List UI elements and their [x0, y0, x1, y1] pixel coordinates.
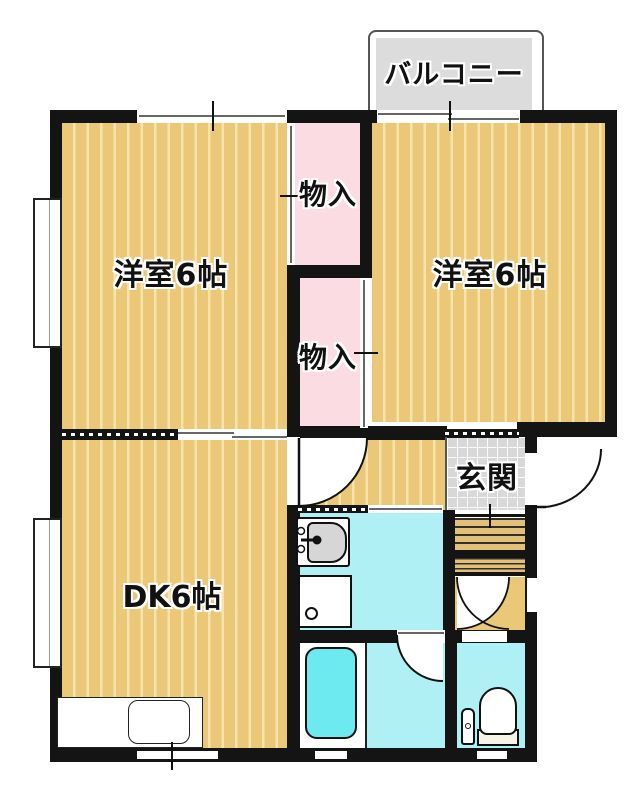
bath-divider-line [365, 643, 367, 748]
entrance-door-gap [525, 453, 537, 505]
toilet-panel-dot [465, 723, 471, 729]
closet-top-slider [287, 123, 295, 265]
wall-closets-bottom [287, 426, 447, 440]
toilet-door-gap [462, 631, 507, 642]
window-left-lower-line [49, 520, 50, 666]
wall-steps-top-line [447, 514, 525, 517]
washroom-sliding-opening [368, 505, 443, 513]
balcony-label: バルコニー [384, 53, 523, 92]
room-left-label: 洋室6帖 [114, 250, 229, 294]
closet-bottom-slider [360, 278, 368, 428]
window-left-lower [33, 518, 62, 668]
balcony-sliding-door [377, 110, 520, 123]
genkan-step-edge [445, 437, 447, 510]
window-left-upper-line [49, 200, 50, 346]
room-right-label: 洋室6帖 [433, 250, 548, 294]
washing-machine-pan [298, 575, 352, 628]
floorplan: バルコニー 洋室6帖 洋室6帖 物入 物入 玄関 DK6帖 [0, 0, 640, 796]
toilet-hall-floor [455, 577, 525, 630]
wall-top [50, 110, 617, 123]
window-bath [315, 751, 347, 759]
bath-door-gap [397, 630, 445, 643]
window-kitchen [137, 751, 218, 759]
wall-genkan-dashed [445, 429, 519, 438]
wall-steps-line [455, 572, 527, 576]
dk-hall-threshold [287, 437, 300, 505]
bathtub [305, 647, 357, 739]
wall-washroom-dashed [298, 505, 368, 513]
genkan-label: 玄関 [456, 453, 518, 497]
wall-room-right-bottom [517, 422, 617, 437]
door-arc-entrance [545, 449, 601, 507]
wall-steps-bar [447, 550, 537, 558]
entrance-steps-lower [455, 558, 527, 572]
closet-top-label: 物入 [299, 173, 357, 213]
hallway-floor [287, 437, 447, 510]
dk-label: DK6帖 [122, 572, 221, 616]
wall-dk-boundary-dashed [62, 429, 178, 440]
wall-right-upper [605, 110, 617, 437]
window-toilet [477, 751, 507, 759]
wall-bath-toilet [445, 630, 457, 748]
closet-bottom-label: 物入 [299, 336, 357, 376]
window-toilet-hall [527, 578, 537, 612]
window-left-upper [33, 198, 62, 348]
washbasin-bowl [307, 522, 347, 563]
wall-bath-row [287, 630, 397, 643]
window-top-left-room [137, 110, 287, 123]
entrance-steps-upper [455, 518, 527, 550]
toilet-bowl [479, 687, 517, 735]
wall-steps-left [443, 510, 455, 635]
dk-sliding-opening [178, 429, 287, 440]
bath-washplace-floor [365, 643, 445, 748]
wall-bottom [50, 748, 537, 762]
washing-machine-drain [305, 607, 318, 620]
kitchen-sink [128, 700, 190, 744]
wall-closet-right [360, 110, 372, 278]
